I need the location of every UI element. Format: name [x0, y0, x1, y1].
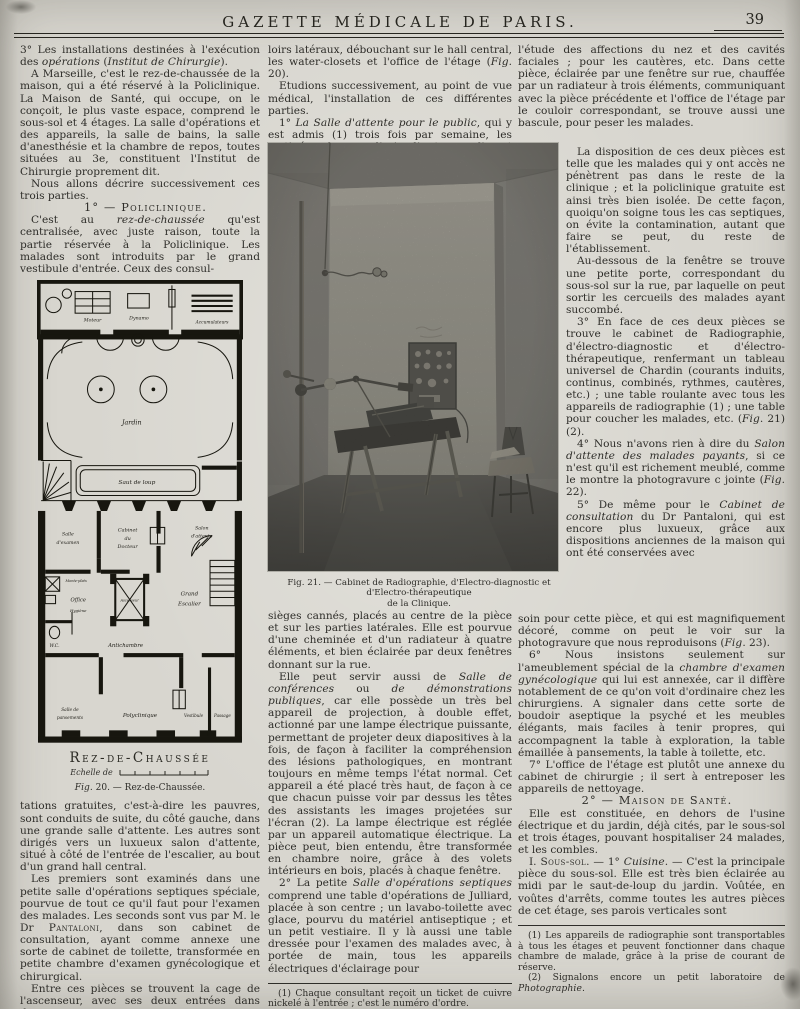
svg-text:d'attente: d'attente [191, 534, 213, 540]
garden [38, 334, 242, 461]
plan-scale: Echelle de [20, 767, 260, 779]
plan-scale-label: Echelle de [70, 767, 112, 779]
footnotes: (1) Les appareils de radiographie sont t… [518, 931, 785, 995]
paragraph: 4° Nous n'avons rien à dire du Salon d'a… [566, 438, 785, 499]
footnote: (1) Les appareils de radiographie sont t… [518, 931, 785, 973]
paragraph: 5° De même pour le Cabinet de consultati… [566, 499, 785, 560]
svg-text:Escalier: Escalier [177, 602, 201, 608]
footnotes: (1) Chaque consultant reçoit un ticket d… [268, 989, 512, 1009]
floor-plan-figure: Moteur Dynamo Accumulateurs Jardin Saut … [37, 280, 243, 746]
plan-label-office: Office [71, 598, 86, 604]
svg-text:du: du [124, 536, 130, 542]
paragraph: 6° Nous insistons seulement sur l'ameubl… [518, 649, 785, 758]
journal-page: GAZETTE MÉDICALE DE PARIS. 39 3° Les ins… [0, 0, 800, 1009]
section-heading-policlinique: 1° — Policlinique. [20, 202, 260, 214]
plan-label-wc: W.C. [50, 643, 61, 649]
fig21-caption-line1: Fig. 21. — Cabinet de Radiographie, d'El… [270, 578, 568, 599]
paragraph: C'est au rez-de-chaussée qu'est centrali… [20, 214, 260, 275]
fig20-caption: Fig. 20. — Rez-de-Chaussée. [20, 782, 260, 794]
floor-plan-drawing: Moteur Dynamo Accumulateurs Jardin Saut … [37, 280, 243, 746]
plan-label-grand-escalier: Grand [181, 591, 199, 597]
plan-label-hygiene: Hygiène [69, 608, 87, 613]
plan-label-ascenseur: Ascenseur [119, 599, 139, 603]
page-number: 39 [746, 12, 764, 28]
radiography-room-photo [268, 143, 558, 571]
svg-text:Docteur: Docteur [117, 544, 139, 550]
right-column-narrow: La disposition de ces deux pièces est te… [566, 146, 785, 559]
svg-text:d'examen: d'examen [56, 540, 79, 546]
journal-masthead: GAZETTE MÉDICALE DE PARIS. [0, 13, 800, 31]
paragraph: sièges cannés, placés au centre de la pi… [268, 610, 512, 671]
paragraph: Au-dessous de la fenêtre se trouve une p… [566, 255, 785, 316]
paragraph: Entre ces pièces se trouvent la cage de … [20, 983, 260, 1009]
plan-label-jardin: Jardin [120, 418, 142, 426]
plan-title: Rez-de-Chaussée [20, 752, 260, 764]
fig21-caption-line2: de la Clinique. [270, 599, 568, 609]
paragraph: Elle est constituée, en dehors de l'usin… [518, 808, 785, 857]
footnote-rule [518, 925, 785, 926]
plan-label-antichambre: Antichambre [107, 643, 143, 649]
plan-label-dynamo: Dynamo [128, 315, 149, 321]
paragraph: loirs latéraux, débouchant sur le hall c… [268, 44, 512, 80]
middle-column-bottom: sièges cannés, placés au centre de la pi… [268, 610, 512, 1009]
footnote-rule [268, 983, 512, 984]
paragraph: 3° Les installations destinées à l'exécu… [20, 44, 260, 68]
plan-label-passage: Passage [213, 713, 231, 718]
plan-label-saut-de-loup: Saut de loup [119, 480, 156, 486]
page-edge-smudge [6, 0, 36, 14]
right-column-bottom: soin pour cette pièce, et qui est magnif… [518, 613, 785, 994]
paragraph: Les premiers sont examinés dans une peti… [20, 873, 260, 982]
plan-label-polyclinique: Polyclinique [122, 713, 158, 719]
paragraph: tations gratuites, c'est-à-dire les pauv… [20, 800, 260, 873]
masthead-double-rule [14, 33, 784, 38]
paragraph: 3° En face de ces deux pièces se trouve … [566, 316, 785, 438]
plan-labels: Moteur Dynamo Accumulateurs Jardin Saut … [50, 315, 232, 721]
fig21-caption: Fig. 21. — Cabinet de Radiographie, d'El… [270, 578, 568, 609]
plan-label-moteur: Moteur [83, 317, 102, 323]
paragraph: 7° L'office de l'étage est plutôt une an… [518, 759, 785, 795]
paragraph: Elle peut servir aussi de Salle de confé… [268, 671, 512, 878]
photo-grain [268, 143, 558, 571]
plan-label-cabinet-docteur: Cabinet [118, 528, 138, 534]
plan-scale-bar [118, 769, 210, 778]
page-number-rule [714, 30, 782, 31]
paragraph: I. Sous-sol. — 1° Cuisine. — C'est la pr… [518, 856, 785, 917]
paragraph: l'étude des affections du nez et des cav… [518, 44, 785, 129]
left-column: 3° Les installations destinées à l'exécu… [20, 44, 260, 1009]
window-piers [62, 501, 217, 511]
plan-label-accumulateurs: Accumulateurs [195, 320, 230, 325]
paragraph: La disposition de ces deux pièces est te… [566, 146, 785, 255]
svg-text:pansements: pansements [57, 716, 84, 721]
paragraph: Etudions successivement, au point de vue… [268, 80, 512, 116]
plan-label-pansements: Salle de [61, 708, 79, 713]
plan-label-monte-plats: Monte-plats [65, 579, 87, 583]
section-heading-maison-de-sante: 2° — Maison de Santé. [518, 795, 785, 807]
photo-illustration [268, 143, 558, 571]
footnote: (1) Chaque consultant reçoit un ticket d… [268, 989, 512, 1009]
paragraph: soin pour cette pièce, et qui est magnif… [518, 613, 785, 649]
plan-label-salle-examen: Salle [62, 532, 74, 538]
machine-room [38, 281, 242, 337]
plan-label-vestibule: Vestibule [184, 713, 204, 718]
paragraph: Nous allons décrire successivement ces t… [20, 178, 260, 202]
right-column-top: l'étude des affections du nez et des cav… [518, 44, 785, 129]
plan-label-salon-attente: Salon [195, 525, 208, 531]
footnote: (2) Signalons encore un petit laboratoir… [518, 973, 785, 994]
paragraph: 2° La petite Salle d'opérations septique… [268, 877, 512, 974]
paragraph: A Marseille, c'est le rez-de-chaussée de… [20, 68, 260, 177]
